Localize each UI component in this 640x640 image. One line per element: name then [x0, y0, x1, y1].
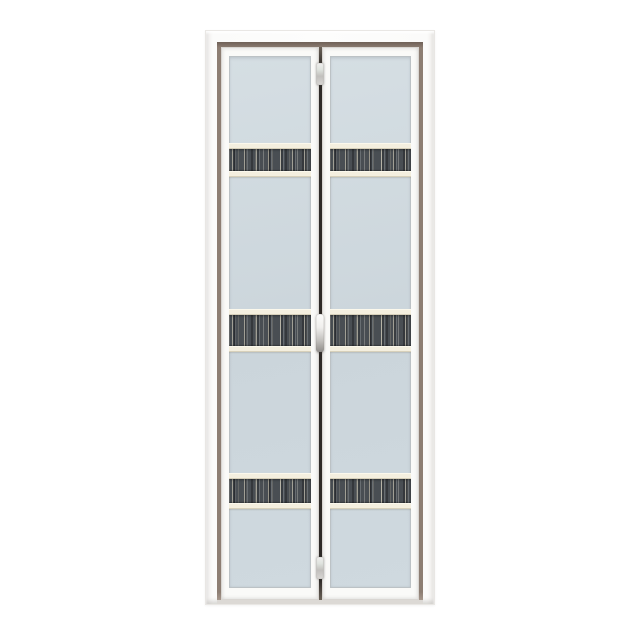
decor-strip [330, 143, 412, 177]
strip-grain-glass [330, 149, 412, 171]
glass-panel [330, 56, 412, 588]
strip-frame-bottom [330, 346, 412, 352]
door-frame [205, 30, 435, 605]
decor-strip [229, 309, 311, 352]
strip-frame-bottom [229, 346, 311, 352]
door-leaves [221, 47, 419, 600]
bottom-hinge [317, 557, 324, 579]
glass-panel [229, 56, 311, 588]
door-leaf-left [221, 47, 319, 600]
top-hinge [317, 63, 324, 85]
strip-frame-bottom [330, 171, 412, 177]
door-leaf-right [322, 47, 420, 600]
strip-grain-glass [229, 315, 311, 346]
door-frame-reveal [217, 42, 423, 604]
decor-strip [229, 143, 311, 177]
strip-grain-glass [229, 149, 311, 171]
strip-frame-bottom [229, 503, 311, 509]
strip-grain-glass [229, 479, 311, 503]
decor-strip [330, 473, 412, 509]
strip-frame-bottom [330, 503, 412, 509]
door-handle [316, 314, 324, 352]
product-photo-stage [0, 0, 640, 640]
strip-frame-bottom [229, 171, 311, 177]
decor-strip [330, 309, 412, 352]
decor-strip [229, 473, 311, 509]
strip-grain-glass [330, 479, 412, 503]
strip-grain-glass [330, 315, 412, 346]
